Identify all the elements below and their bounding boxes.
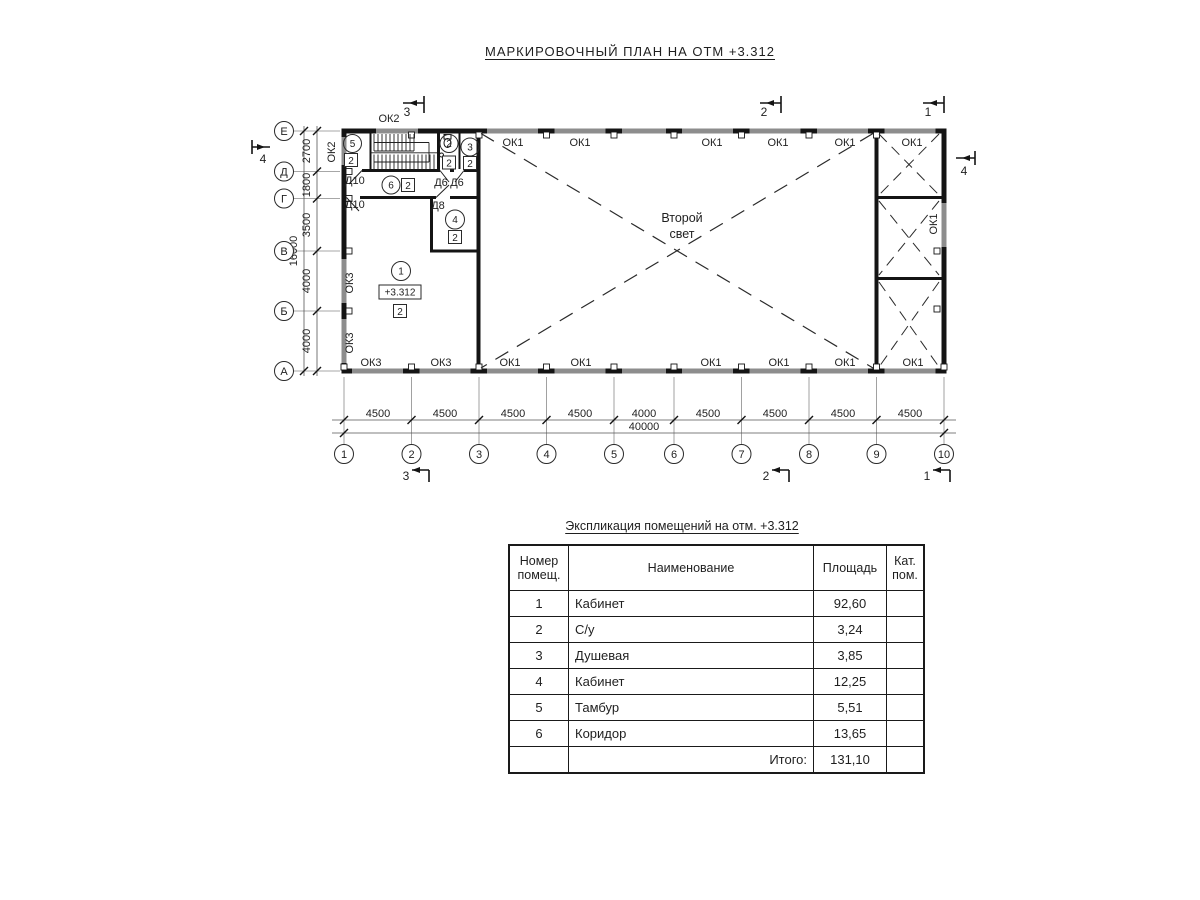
grid-row-label: Д <box>280 167 288 179</box>
dim-label: 4500 <box>763 408 787 420</box>
window-label: ОК3 <box>360 357 381 369</box>
window-label: ОК1 <box>901 137 922 149</box>
grid-row-label: В <box>280 246 287 258</box>
grid-col-label: 6 <box>671 449 677 461</box>
room-number-2: 2 <box>446 139 452 150</box>
window-label: ОК3 <box>430 357 451 369</box>
dim-label: 4500 <box>366 408 390 420</box>
door-label: Д10 <box>345 175 365 187</box>
window-label: ОК1 <box>768 357 789 369</box>
dim-label: 4500 <box>433 408 457 420</box>
window-label: ОК2 <box>378 113 399 125</box>
section-mark-label: 2 <box>761 105 768 119</box>
window-label: ОК2 <box>326 141 338 162</box>
window-label: ОК1 <box>767 137 788 149</box>
section-mark-label: 1 <box>924 469 931 483</box>
window-label: ОК1 <box>701 137 722 149</box>
staircase <box>370 134 437 170</box>
room-number-4: 4 <box>452 215 458 226</box>
dim-label: 1800 <box>301 173 313 197</box>
finish-box-label: 2 <box>348 156 354 167</box>
floor-plan: 1 2 3 4 5 6 2 2 2 2 2 2 <box>0 0 1200 500</box>
table-total-row: Итого: 131,10 <box>509 747 924 774</box>
window-label: ОК3 <box>344 332 356 353</box>
dim-label: 2700 <box>301 139 313 163</box>
window-label: ОК1 <box>570 357 591 369</box>
elevation-value: +3.312 <box>385 288 416 299</box>
dim-label: 4500 <box>696 408 720 420</box>
dim-label: 4500 <box>831 408 855 420</box>
section-mark-label: 4 <box>260 152 267 166</box>
room-number-3: 3 <box>467 143 473 154</box>
header-category: Кат.пом. <box>887 545 925 591</box>
bottom-dimensions: 4500 4500 4500 4500 4000 4500 4500 4500 … <box>332 408 956 437</box>
header-room-number: Номерпомещ. <box>509 545 569 591</box>
window-labels: ОК2 ОК1 ОК1 ОК1 ОК1 ОК1 ОК1 ОК3 ОК3 ОК1 … <box>326 113 940 369</box>
elevation-mark: +3.312 <box>379 285 421 299</box>
grid-row-label: Е <box>280 126 287 138</box>
finish-box-label: 2 <box>467 159 473 170</box>
door-label: Д6 <box>434 177 448 189</box>
room-number-6: 6 <box>388 181 394 192</box>
window-label: ОК1 <box>569 137 590 149</box>
column-grid-bubbles: 1 2 3 4 5 6 7 8 9 10 <box>335 445 954 464</box>
grid-row-label: А <box>280 366 288 378</box>
grid-col-label: 9 <box>873 449 879 461</box>
schedule-header-row: Номерпомещ. Наименование Площадь Кат.пом… <box>509 545 924 591</box>
grid-row-label: Г <box>281 194 287 206</box>
dim-label: 4500 <box>568 408 592 420</box>
finish-box-label: 2 <box>452 233 458 244</box>
second-light-label-2: свет <box>669 227 694 241</box>
window-label: ОК1 <box>700 357 721 369</box>
table-row: 2 С/у 3,24 <box>509 617 924 643</box>
grid-col-label: 7 <box>738 449 744 461</box>
table-row: 4 Кабинет 12,25 <box>509 669 924 695</box>
grid-col-label: 3 <box>476 449 482 461</box>
grid-col-label: 2 <box>408 449 414 461</box>
table-row: 6 Коридор 13,65 <box>509 721 924 747</box>
door-label: Д10 <box>345 199 365 211</box>
section-mark-label: 2 <box>763 469 770 483</box>
header-name: Наименование <box>569 545 814 591</box>
total-area: 131,10 <box>814 747 887 774</box>
drawing-sheet: МАРКИРОВОЧНЫЙ ПЛАН НА ОТМ +3.312 <box>0 0 1200 900</box>
second-light-cross <box>481 134 873 369</box>
schedule-title: Экспликация помещений на отм. +3.312 <box>492 519 872 533</box>
window-label: ОК1 <box>502 137 523 149</box>
section-mark-label: 3 <box>403 469 410 483</box>
table-row: 5 Тамбур 5,51 <box>509 695 924 721</box>
shaft-crosses <box>879 134 939 367</box>
dim-label: 4000 <box>632 408 656 420</box>
section-mark-label: 3 <box>404 105 411 119</box>
window-label: ОК1 <box>834 357 855 369</box>
grid-col-label: 5 <box>611 449 617 461</box>
dim-label: 4500 <box>898 408 922 420</box>
grid-col-label: 4 <box>543 449 549 461</box>
window-label: ОК1 <box>928 213 940 234</box>
window-label: ОК3 <box>344 272 356 293</box>
row-grid-bubbles: Е Д Г В Б А <box>275 122 294 381</box>
grid-col-label: 10 <box>938 449 950 461</box>
section-mark-label: 1 <box>925 105 932 119</box>
grid-row-label: Б <box>280 306 287 318</box>
door-label: Д8 <box>431 200 445 212</box>
room-number-5: 5 <box>350 139 356 150</box>
dim-label: 4500 <box>501 408 525 420</box>
total-label: Итого: <box>569 747 814 774</box>
door-label: Д6 <box>450 177 464 189</box>
grid-col-label: 8 <box>806 449 812 461</box>
room-number-1: 1 <box>398 267 404 278</box>
dim-label: 4000 <box>301 269 313 293</box>
window-label: ОК1 <box>499 357 520 369</box>
room-schedule-table: Номерпомещ. Наименование Площадь Кат.пом… <box>508 544 925 774</box>
dim-total-label: 40000 <box>629 421 660 433</box>
window-label: ОК1 <box>902 357 923 369</box>
section-marks: 3 2 1 3 2 1 4 4 <box>252 96 975 483</box>
header-area: Площадь <box>814 545 887 591</box>
table-row: 3 Душевая 3,85 <box>509 643 924 669</box>
second-light-label-1: Второй <box>661 211 702 225</box>
dim-label: 4000 <box>301 329 313 353</box>
finish-box-label: 2 <box>397 307 403 318</box>
section-mark-label: 4 <box>961 164 968 178</box>
dim-label: 3500 <box>301 213 313 237</box>
finish-box-label: 2 <box>405 181 411 192</box>
window-label: ОК1 <box>834 137 855 149</box>
table-row: 1 Кабинет 92,60 <box>509 591 924 617</box>
grid-col-label: 1 <box>341 449 347 461</box>
finish-box-label: 2 <box>446 159 452 170</box>
